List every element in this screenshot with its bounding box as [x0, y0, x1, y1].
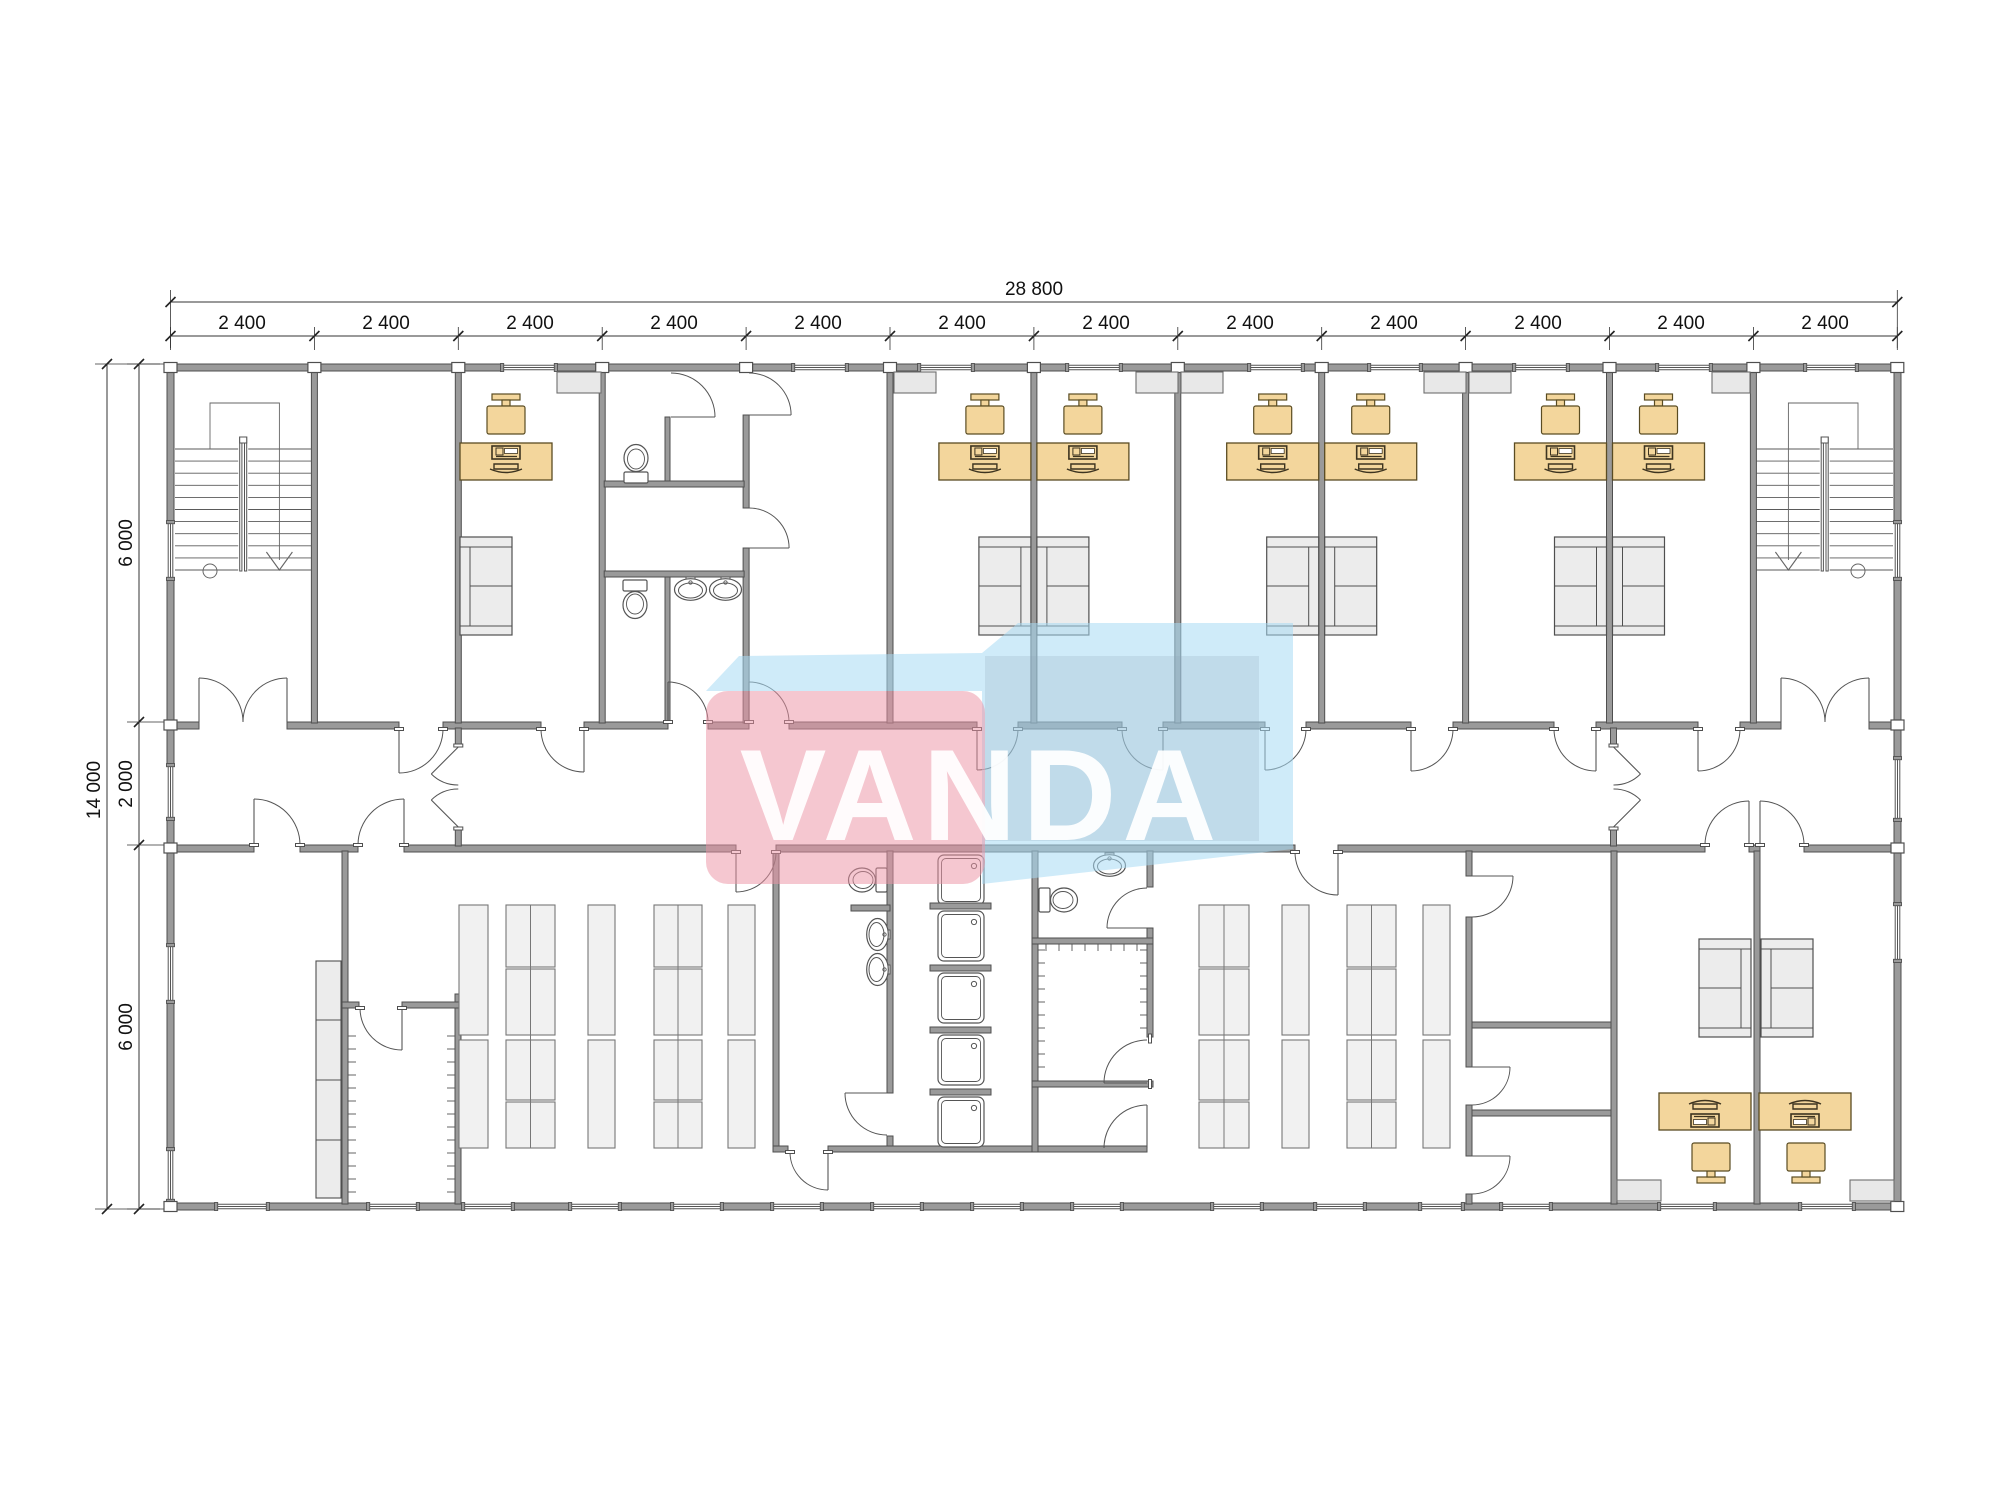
- svg-text:2 400: 2 400: [506, 313, 554, 334]
- svg-text:2 400: 2 400: [1514, 313, 1562, 334]
- svg-text:2 000: 2 000: [116, 760, 137, 808]
- svg-text:2 400: 2 400: [1657, 313, 1705, 334]
- svg-text:2 400: 2 400: [1226, 313, 1274, 334]
- svg-text:2 400: 2 400: [1082, 313, 1130, 334]
- svg-text:2 400: 2 400: [938, 313, 986, 334]
- svg-text:2 400: 2 400: [218, 313, 266, 334]
- svg-text:2 400: 2 400: [650, 313, 698, 334]
- svg-text:6 000: 6 000: [116, 1003, 137, 1051]
- svg-text:2 400: 2 400: [1801, 313, 1849, 334]
- svg-text:14 000: 14 000: [84, 761, 105, 819]
- svg-text:2 400: 2 400: [362, 313, 410, 334]
- svg-text:2 400: 2 400: [1370, 313, 1418, 334]
- svg-text:VANDA: VANDA: [740, 722, 1223, 868]
- svg-text:28 800: 28 800: [1005, 279, 1063, 300]
- svg-text:6 000: 6 000: [116, 519, 137, 567]
- svg-text:2 400: 2 400: [794, 313, 842, 334]
